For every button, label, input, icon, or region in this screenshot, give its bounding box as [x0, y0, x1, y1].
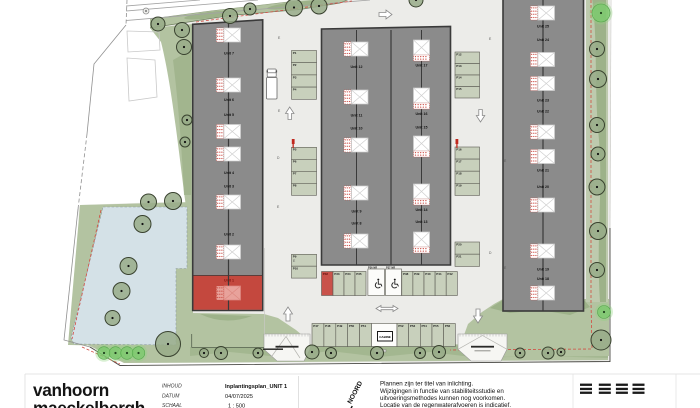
svg-text:Unit 21: Unit 21 — [537, 169, 549, 173]
svg-text:Unit 11: Unit 11 — [351, 114, 363, 118]
svg-text:Unit 24: Unit 24 — [537, 38, 549, 42]
svg-text:Unit 7: Unit 7 — [224, 52, 234, 56]
svg-text:P2: P2 — [293, 63, 297, 67]
svg-text:Unit 15: Unit 15 — [416, 126, 428, 130]
svg-text:P35: P35 — [356, 272, 362, 276]
svg-text:P6: P6 — [293, 160, 297, 164]
svg-text:DATUM: DATUM — [162, 394, 180, 400]
svg-text:Unit 17: Unit 17 — [416, 64, 428, 68]
svg-text:P10: P10 — [293, 267, 299, 271]
svg-text:P8: P8 — [293, 184, 297, 188]
svg-text:vanhoorn: vanhoorn — [33, 380, 109, 400]
svg-text:P39: P39 — [414, 272, 420, 276]
svg-text:P37 NR: P37 NR — [386, 266, 395, 270]
svg-text:P51: P51 — [361, 324, 367, 328]
svg-text:Unit 2: Unit 2 — [224, 233, 234, 237]
svg-text:P4: P4 — [293, 88, 297, 92]
svg-text:SCHAAL: SCHAAL — [162, 403, 182, 408]
svg-text:Locatie van de regenwaterafvoe: Locatie van de regenwaterafvoeren is ind… — [380, 402, 511, 408]
svg-text:Unit 3: Unit 3 — [224, 185, 234, 189]
svg-text:Unit 14: Unit 14 — [416, 208, 428, 212]
svg-text:Unit 13: Unit 13 — [416, 220, 428, 224]
svg-text:INHOUD: INHOUD — [162, 384, 182, 390]
svg-text:P47: P47 — [313, 324, 319, 328]
svg-text:Unit 8: Unit 8 — [352, 222, 362, 226]
svg-text:Inplantingsplan_UNIT 1: Inplantingsplan_UNIT 1 — [225, 384, 287, 390]
svg-text:P50: P50 — [349, 324, 355, 328]
svg-text:Unit 9: Unit 9 — [352, 210, 362, 214]
svg-text:Unit 12: Unit 12 — [351, 65, 363, 69]
svg-text:maeckelbergh: maeckelbergh — [33, 398, 145, 408]
svg-text:P1: P1 — [293, 51, 297, 55]
svg-text:P54: P54 — [422, 324, 428, 328]
svg-text:04/07/2025: 04/07/2025 — [225, 394, 253, 400]
svg-text:Plannen zijn ter titel van inl: Plannen zijn ter titel van inlichting. — [380, 381, 473, 388]
svg-text:P15: P15 — [456, 87, 462, 91]
svg-text:P42: P42 — [447, 272, 453, 276]
svg-text:P7: P7 — [293, 172, 297, 176]
svg-text:Unit 4: Unit 4 — [224, 171, 234, 175]
svg-text:P55: P55 — [433, 324, 439, 328]
svg-text:P34: P34 — [345, 272, 351, 276]
svg-text:P12: P12 — [456, 52, 462, 56]
svg-text:P20: P20 — [456, 242, 462, 246]
svg-text:P18: P18 — [456, 172, 462, 176]
svg-text:P40: P40 — [425, 272, 431, 276]
svg-text:P19: P19 — [456, 184, 462, 188]
svg-text:P33: P33 — [334, 272, 340, 276]
svg-text:P52: P52 — [398, 324, 404, 328]
svg-text:Wijzigingen in functie van sta: Wijzigingen in functie van stabiliteitss… — [380, 388, 504, 395]
svg-text:P48: P48 — [325, 324, 331, 328]
svg-text:Unit 1: Unit 1 — [224, 279, 234, 283]
svg-text:Unit 6: Unit 6 — [224, 98, 234, 102]
svg-text:1 : 500: 1 : 500 — [228, 404, 245, 408]
svg-text:Unit 10: Unit 10 — [351, 127, 363, 131]
svg-text:P36 NR: P36 NR — [368, 266, 377, 270]
svg-text:Unit 18: Unit 18 — [537, 277, 549, 281]
svg-text:P56: P56 — [445, 324, 451, 328]
svg-text:P5: P5 — [293, 148, 297, 152]
svg-text:CABINE: CABINE — [379, 335, 391, 339]
svg-text:P13: P13 — [456, 64, 462, 68]
svg-text:uitvoeringsmethodes kunnen nog: uitvoeringsmethodes kunnen nog voorkomen… — [380, 395, 505, 402]
svg-text:P21: P21 — [456, 255, 462, 259]
svg-text:Unit 19: Unit 19 — [537, 268, 549, 272]
svg-text:Unit 16: Unit 16 — [416, 112, 428, 116]
svg-text:P3: P3 — [293, 75, 297, 79]
svg-text:Unit 23: Unit 23 — [537, 99, 549, 103]
svg-text:Unit 5: Unit 5 — [224, 113, 234, 117]
svg-text:Unit 25: Unit 25 — [537, 25, 549, 29]
svg-text:P14: P14 — [456, 75, 462, 79]
svg-text:P38: P38 — [403, 272, 409, 276]
svg-text:P41: P41 — [436, 272, 442, 276]
svg-text:P32: P32 — [323, 272, 329, 276]
svg-text:P53: P53 — [410, 324, 416, 328]
svg-text:P49: P49 — [337, 324, 343, 328]
svg-text:Unit 22: Unit 22 — [537, 110, 549, 114]
svg-text:P17: P17 — [456, 160, 462, 164]
svg-text:Unit 20: Unit 20 — [537, 185, 549, 189]
